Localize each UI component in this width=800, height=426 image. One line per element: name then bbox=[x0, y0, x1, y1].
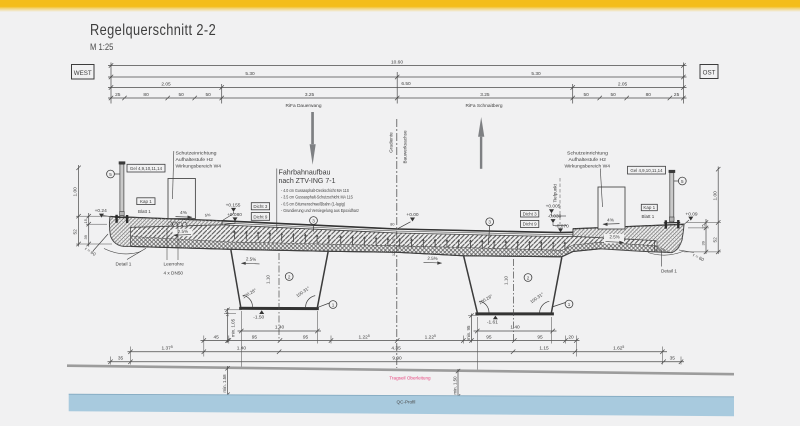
svg-text:39: 39 bbox=[700, 240, 705, 245]
svg-text:Dicht 9: Dicht 9 bbox=[253, 214, 268, 219]
svg-text:1.225: 1.225 bbox=[425, 334, 436, 340]
svg-text:1: 1 bbox=[568, 302, 571, 307]
svg-text:min. 95: min. 95 bbox=[466, 325, 471, 340]
svg-text:6.50: 6.50 bbox=[401, 81, 411, 87]
svg-text:Fahrbahnaufbau: Fahrbahnaufbau bbox=[279, 170, 331, 177]
svg-text:Tragseil Oberleitung: Tragseil Oberleitung bbox=[389, 376, 431, 381]
svg-text:5: 5 bbox=[681, 179, 684, 184]
svg-text:Wirkungsbereich W4: Wirkungsbereich W4 bbox=[176, 164, 222, 169]
svg-text:1.225: 1.225 bbox=[358, 334, 369, 340]
svg-text:1.15: 1.15 bbox=[539, 346, 549, 352]
svg-text:Wirkungsbereich W4: Wirkungsbereich W4 bbox=[565, 164, 611, 169]
svg-text:- 3.5 cm Gussasphalt-Schutzsch: - 3.5 cm Gussasphalt-Schutzschicht MA 11… bbox=[281, 195, 353, 200]
svg-text:QC-Profil: QC-Profil bbox=[397, 399, 416, 404]
svg-text:2.5%: 2.5% bbox=[427, 256, 437, 261]
svg-text:3: 3 bbox=[312, 218, 315, 223]
svg-text:1.10: 1.10 bbox=[266, 275, 271, 284]
svg-text:100.31°: 100.31° bbox=[295, 285, 311, 298]
svg-text:4%: 4% bbox=[180, 210, 188, 216]
svg-text:25: 25 bbox=[115, 92, 121, 98]
svg-text:+0.155: +0.155 bbox=[226, 202, 241, 208]
svg-text:52: 52 bbox=[712, 237, 718, 243]
svg-text:1.10: 1.10 bbox=[504, 276, 509, 285]
svg-text:95: 95 bbox=[537, 334, 543, 340]
svg-text:+0.00: +0.00 bbox=[406, 212, 418, 218]
svg-text:50: 50 bbox=[611, 92, 617, 98]
svg-text:1: 1 bbox=[332, 302, 335, 307]
svg-text:nach ZTV-ING 7-1: nach ZTV-ING 7-1 bbox=[279, 178, 336, 185]
svg-text:1.40: 1.40 bbox=[275, 325, 285, 331]
svg-text:3.25: 3.25 bbox=[480, 92, 490, 98]
svg-text:Detail 1: Detail 1 bbox=[661, 269, 677, 274]
svg-text:80: 80 bbox=[646, 92, 652, 98]
svg-text:RiFa Schnaitberg: RiFa Schnaitberg bbox=[465, 103, 502, 109]
svg-text:OST: OST bbox=[703, 70, 716, 77]
svg-text:Gel 4,9,10,11,14: Gel 4,9,10,11,14 bbox=[630, 168, 663, 173]
svg-text:95: 95 bbox=[252, 334, 258, 340]
svg-text:+0.09: +0.09 bbox=[685, 211, 697, 217]
svg-text:4 x DN50: 4 x DN50 bbox=[164, 271, 184, 276]
svg-text:5.30: 5.30 bbox=[245, 71, 255, 77]
svg-text:2.5%: 2.5% bbox=[246, 257, 256, 262]
svg-text:2: 2 bbox=[527, 275, 530, 280]
svg-text:2.05: 2.05 bbox=[618, 81, 628, 87]
svg-text:-1.50: -1.50 bbox=[253, 315, 264, 321]
svg-text:WEST: WEST bbox=[74, 70, 92, 77]
svg-text:45: 45 bbox=[214, 334, 220, 340]
svg-text:+0.24: +0.24 bbox=[95, 208, 107, 214]
svg-text:1.40: 1.40 bbox=[510, 325, 520, 331]
svg-text:35: 35 bbox=[670, 356, 676, 362]
svg-text:50: 50 bbox=[206, 92, 212, 98]
svg-text:20: 20 bbox=[568, 334, 574, 340]
svg-text:Tiefpunkt: Tiefpunkt bbox=[553, 183, 558, 202]
svg-text:Gel 4,9,10,11,14: Gel 4,9,10,11,14 bbox=[130, 166, 163, 171]
svg-text:2: 2 bbox=[288, 274, 291, 279]
svg-text:35: 35 bbox=[118, 356, 124, 362]
svg-text:39: 39 bbox=[83, 234, 88, 239]
svg-text:50: 50 bbox=[179, 92, 185, 98]
svg-text:Detail 1: Detail 1 bbox=[116, 262, 132, 267]
svg-text:3.25: 3.25 bbox=[305, 92, 315, 98]
svg-text:Aufhaltestufe H2: Aufhaltestufe H2 bbox=[569, 157, 607, 162]
svg-text:min. 1.50: min. 1.50 bbox=[452, 376, 457, 395]
svg-text:Blatt 1: Blatt 1 bbox=[138, 209, 151, 214]
svg-text:Dicht 3: Dicht 3 bbox=[523, 212, 538, 217]
svg-text:5%: 5% bbox=[204, 212, 211, 218]
svg-text:12: 12 bbox=[392, 252, 396, 256]
svg-text:4%: 4% bbox=[607, 218, 615, 224]
svg-text:2.5%: 2.5% bbox=[178, 229, 188, 234]
svg-text:min. 1.05: min. 1.05 bbox=[231, 318, 236, 337]
svg-text:- 0.5 cm Bitumenschweißbahn (1: - 0.5 cm Bitumenschweißbahn (1-lagig) bbox=[281, 201, 345, 206]
svg-text:Aufhaltestufe H2: Aufhaltestufe H2 bbox=[176, 157, 214, 162]
svg-text:Dicht 3: Dicht 3 bbox=[253, 204, 268, 209]
svg-text:52: 52 bbox=[73, 229, 79, 235]
svg-text:1.625: 1.625 bbox=[613, 345, 624, 351]
svg-text:15: 15 bbox=[83, 218, 88, 223]
svg-text:10.60: 10.60 bbox=[391, 59, 403, 65]
svg-text:2.5%: 2.5% bbox=[609, 234, 619, 239]
svg-text:- Grundierung und Versiegelung: - Grundierung und Versiegelung aus Epoxi… bbox=[281, 208, 359, 213]
svg-text:100.28°: 100.28° bbox=[478, 293, 494, 305]
svg-text:-0.030: -0.030 bbox=[548, 214, 562, 220]
svg-text:4.35: 4.35 bbox=[391, 346, 401, 352]
svg-text:Schutzeinrichtung: Schutzeinrichtung bbox=[567, 151, 608, 156]
svg-text:Dicht 9: Dicht 9 bbox=[523, 222, 538, 227]
svg-text:25: 25 bbox=[674, 92, 680, 98]
svg-text:80: 80 bbox=[390, 223, 394, 227]
svg-text:-1.61: -1.61 bbox=[487, 320, 498, 326]
svg-text:15: 15 bbox=[700, 224, 705, 229]
svg-text:Bauwerksachse: Bauwerksachse bbox=[402, 130, 407, 163]
svg-text:Kap 1: Kap 1 bbox=[643, 205, 655, 210]
svg-text:Leerrohre: Leerrohre bbox=[164, 262, 185, 267]
svg-text:1.00: 1.00 bbox=[712, 191, 718, 201]
svg-text:100.28°: 100.28° bbox=[242, 287, 258, 299]
svg-text:r = 60: r = 60 bbox=[84, 246, 97, 257]
svg-text:95: 95 bbox=[486, 334, 492, 340]
svg-text:r = 60: r = 60 bbox=[692, 252, 705, 262]
svg-text:5.30: 5.30 bbox=[531, 71, 541, 77]
svg-text:1.00: 1.00 bbox=[73, 187, 79, 197]
svg-text:15: 15 bbox=[224, 311, 229, 316]
svg-text:min. 1.58: min. 1.58 bbox=[222, 374, 227, 393]
svg-text:5: 5 bbox=[109, 172, 112, 177]
svg-text:+0.005: +0.005 bbox=[546, 204, 561, 210]
svg-text:Blatt 1: Blatt 1 bbox=[642, 214, 655, 219]
svg-text:Kap 1: Kap 1 bbox=[140, 199, 152, 204]
svg-text:+0.080: +0.080 bbox=[227, 212, 242, 218]
svg-text:3: 3 bbox=[488, 220, 491, 225]
svg-text:7.5: 7.5 bbox=[392, 239, 396, 244]
svg-text:95: 95 bbox=[303, 334, 309, 340]
svg-text:Gradiente: Gradiente bbox=[388, 132, 393, 153]
svg-text:9.90: 9.90 bbox=[392, 356, 402, 362]
svg-text:- 4.0 cm Gussasphalt-Deckschic: - 4.0 cm Gussasphalt-Deckschicht MA 11S bbox=[281, 188, 349, 193]
svg-text:50: 50 bbox=[584, 92, 590, 98]
svg-text:80: 80 bbox=[143, 92, 149, 98]
svg-text:100.31°: 100.31° bbox=[529, 291, 545, 304]
svg-text:1.375: 1.375 bbox=[161, 345, 172, 351]
svg-text:RiFa Dauerwang: RiFa Dauerwang bbox=[286, 103, 322, 109]
svg-text:2.05: 2.05 bbox=[161, 81, 171, 87]
svg-text:Schutzeinrichtung: Schutzeinrichtung bbox=[176, 151, 217, 156]
